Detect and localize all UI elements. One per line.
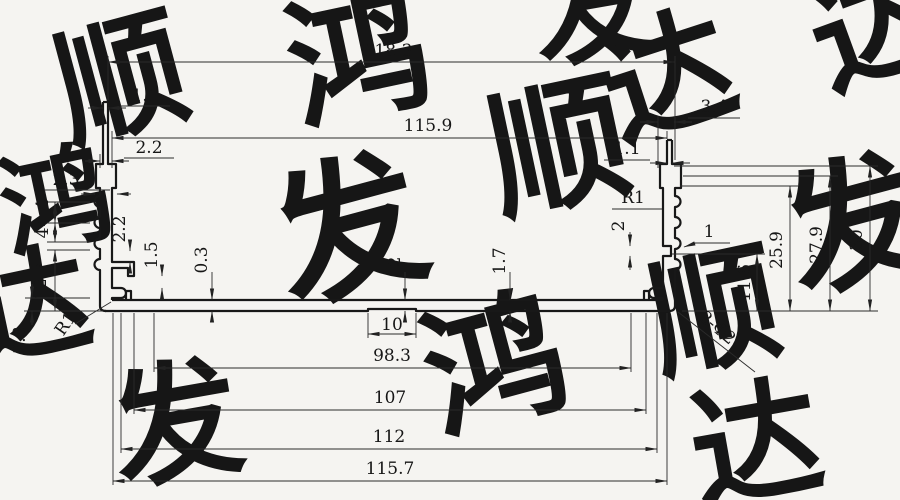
dim-label-right-inner-height: 11.6 (735, 264, 755, 302)
dim-label-left-tooth-width: 2.3 (52, 170, 79, 190)
dim-label-bottom-lip: 2.8 (10, 326, 30, 353)
technical-drawing: 顺 达 鸿 发 顺 达 发 鸿 顺 达 发 达 发 鸿 (0, 0, 900, 500)
dim-label-right-notch-height: 2 (609, 221, 629, 232)
dim-label-bottom-outer: 112 (373, 427, 405, 447)
dim-label-base-thickness: 2 (385, 257, 405, 268)
dim-label-bottom-inner: 98.3 (373, 346, 411, 366)
dim-label-wall-inner-height: 12.7 (31, 262, 51, 300)
dim-label-height-tooth: 27.9 (807, 226, 827, 264)
dim-label-bottom-overall: 115.7 (366, 459, 415, 479)
dim-label-base-step: 0.3 (192, 246, 212, 273)
dim-label-height-serration: 25.9 (767, 231, 787, 269)
dim-label-overall-height: 30 (847, 229, 867, 251)
watermark-char: 达 (679, 357, 834, 500)
dim-label-groove-width: 10 (381, 315, 403, 335)
dim-label-overall-width: 118.3 (364, 41, 413, 61)
dim-label-fin-offset-right: 3.4 (700, 97, 727, 117)
dim-label-base-thickness-right: 1.7 (490, 247, 510, 274)
dim-label-slot-gap: 1.5 (142, 241, 162, 268)
dim-label-left-fin-thickness: 1.1 (131, 86, 158, 106)
dim-label-left-wall-thickness: 2.2 (135, 138, 162, 158)
watermark-char: 发 (99, 337, 254, 500)
dim-label-right-fin-thickness: 1.1 (613, 139, 640, 159)
dim-label-serration-pitch-a: 4.4 (33, 199, 53, 226)
dim-label-top-inner-width: 115.9 (404, 116, 453, 136)
dim-label-serration-pitch-b: 4 (33, 228, 53, 239)
dim-label-bottom-mid: 107 (374, 388, 406, 408)
dim-label-ledge-gap: 2.2 (110, 215, 130, 242)
dim-label-serration-depth: 1 (704, 222, 715, 242)
drawing-sheet: 顺 达 鸿 发 顺 达 发 鸿 顺 达 发 达 发 鸿 (0, 0, 900, 500)
dim-label-corner-radius-right: R1 (621, 188, 645, 208)
